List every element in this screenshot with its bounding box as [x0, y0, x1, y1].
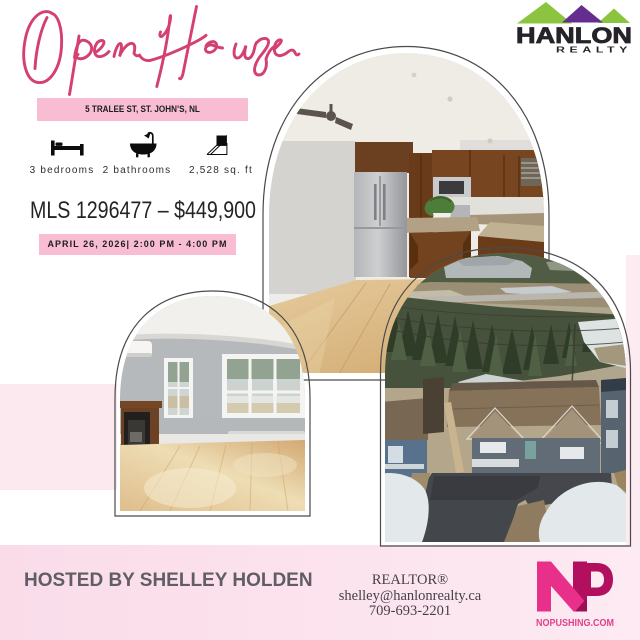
svg-text:REALTY: REALTY [556, 46, 632, 55]
svg-text:HANLON: HANLON [516, 23, 632, 48]
